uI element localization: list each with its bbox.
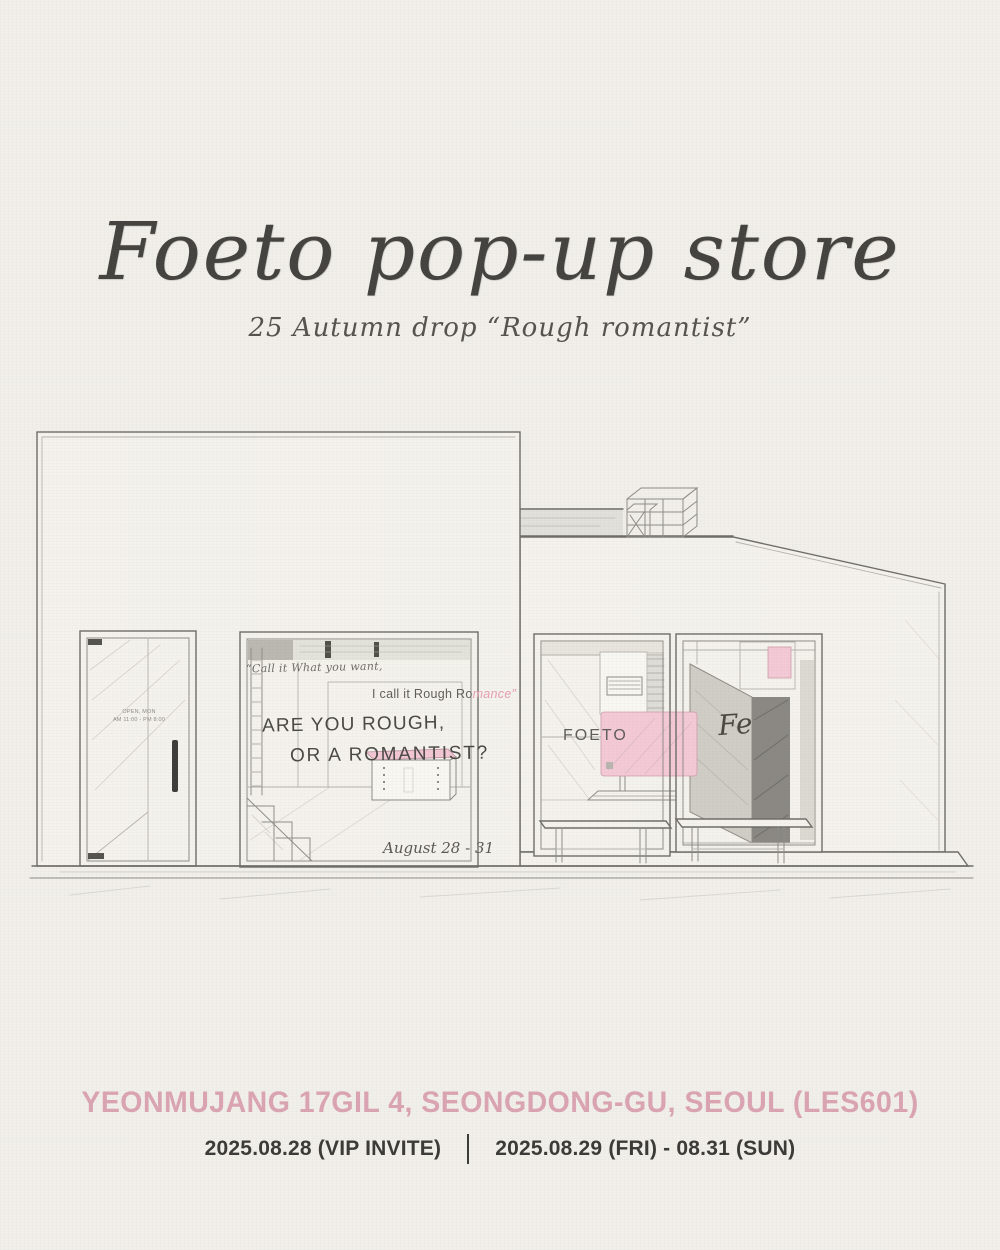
rooftop-frame	[627, 488, 697, 537]
window-headline-line1: ARE YOU ROUGH,	[262, 712, 446, 737]
door-handle	[172, 740, 178, 792]
venue-address: YEONMUJANG 17GIL 4, SEONGDONG-GU, SEOUL …	[25, 1086, 975, 1120]
storefront-sign-text: FOETO	[563, 727, 628, 745]
storefront-illustration	[0, 0, 1000, 1250]
popup-store-poster: Foeto pop-up store 25 Autumn drop “Rough…	[0, 0, 1000, 1250]
window-date-note: August 28 - 31	[383, 839, 494, 857]
vip-date: 2025.08.28 (VIP INVITE)	[205, 1137, 442, 1161]
left-building	[37, 432, 520, 867]
dates-divider	[467, 1134, 469, 1164]
window-quote-line2: I call it Rough Romance”	[372, 687, 516, 701]
fe-monogram: Fe	[717, 707, 754, 742]
event-dates: 2025.08.28 (VIP INVITE) 2025.08.29 (FRI)…	[0, 1134, 1000, 1164]
window-headline-line2: OR A ROMANTIST?	[290, 743, 489, 768]
public-dates: 2025.08.29 (FRI) - 08.31 (SUN)	[495, 1137, 795, 1161]
door-hours-sign: OPEN, MON AM 11:00 - PM 8:00	[103, 709, 175, 724]
ground	[30, 866, 973, 900]
roof-parapet	[514, 509, 733, 536]
clerestory-pink-window	[768, 647, 791, 678]
